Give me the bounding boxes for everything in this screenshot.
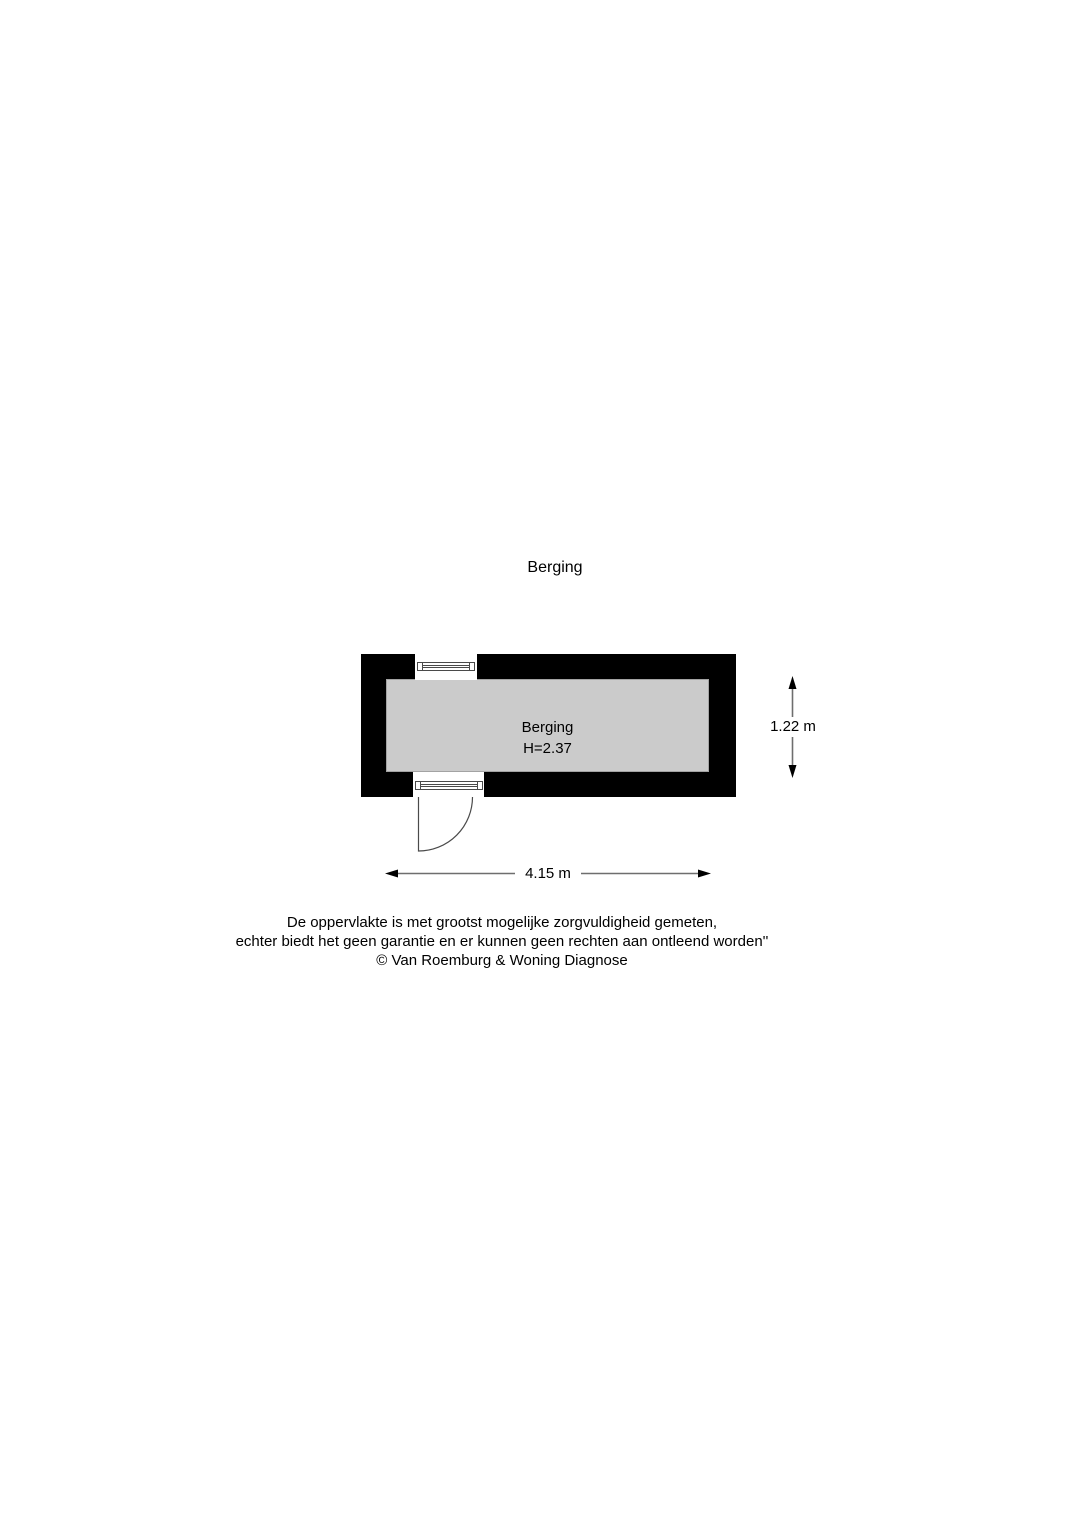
disclaimer-line-2: echter biedt het geen garantie en er kun… xyxy=(102,932,902,951)
room-wall: Berging H=2.37 xyxy=(361,654,736,797)
disclaimer-line-1: De oppervlakte is met grootst mogelijke … xyxy=(102,913,902,932)
dimension-width-label: 4.15 m xyxy=(515,864,581,884)
door-opening-bottom xyxy=(413,772,484,797)
door-swing-icon xyxy=(419,797,473,851)
room-floor: Berging H=2.37 xyxy=(386,679,709,772)
window-opening-top xyxy=(415,654,477,680)
room-ceiling-height: H=2.37 xyxy=(387,738,708,759)
dimension-height-label: 1.22 m xyxy=(763,717,823,737)
room-label: Berging H=2.37 xyxy=(387,717,708,759)
room-name: Berging xyxy=(387,717,708,738)
disclaimer: De oppervlakte is met grootst mogelijke … xyxy=(102,913,902,970)
page-title: Berging xyxy=(405,558,705,578)
floorplan-page: { "floorplan": { "title": "Berging", "ro… xyxy=(0,0,1080,1528)
disclaimer-line-3: © Van Roemburg & Woning Diagnose xyxy=(102,951,902,970)
